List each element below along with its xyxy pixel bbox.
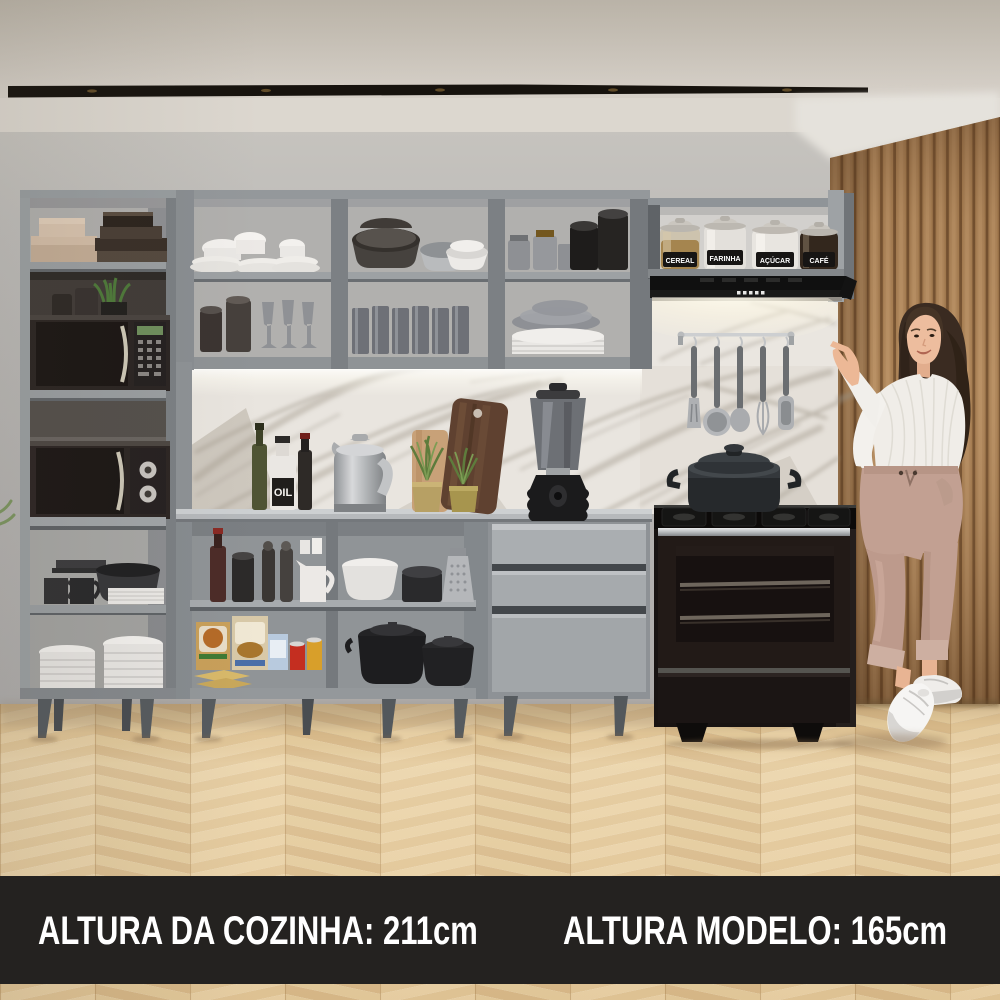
svg-text:OIL: OIL [274,487,293,499]
svg-text:CEREAL: CEREAL [666,258,696,265]
svg-text:CAFÉ: CAFÉ [809,256,828,265]
svg-text:FARINHA: FARINHA [709,256,740,263]
svg-text:AÇÚCAR: AÇÚCAR [760,256,790,265]
